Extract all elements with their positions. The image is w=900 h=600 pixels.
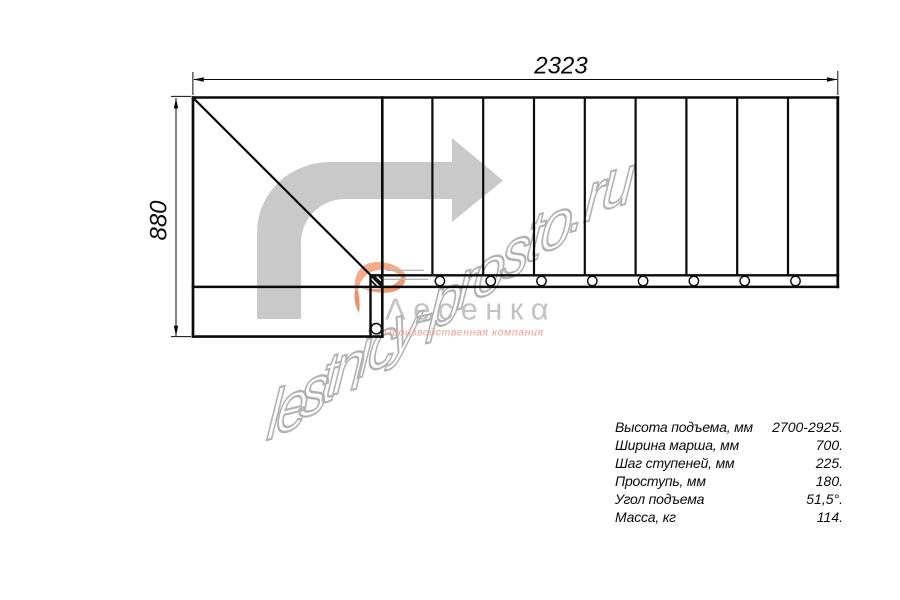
svg-text:Ширина марша, мм: Ширина марша, мм [615,437,740,453]
svg-text:Шаг ступеней, мм: Шаг ступеней, мм [615,455,735,471]
svg-text:Угол подъема: Угол подъема [614,491,705,507]
svg-text:51,5°.: 51,5°. [806,491,843,507]
svg-text:180.: 180. [816,473,843,489]
svg-text:Масса, кг: Масса, кг [615,509,676,525]
svg-text:700.: 700. [816,437,843,453]
svg-text:114.: 114. [817,509,843,525]
svg-text:2700-2925.: 2700-2925. [771,419,843,435]
svg-text:Производственная компания: Производственная компания [384,327,544,339]
svg-text:Высота подъема, мм: Высота подъема, мм [615,419,754,435]
svg-text:880: 880 [146,200,173,241]
svg-text:225.: 225. [815,455,843,471]
svg-text:Проступь, мм: Проступь, мм [615,473,706,489]
svg-text:2323: 2323 [533,53,588,80]
